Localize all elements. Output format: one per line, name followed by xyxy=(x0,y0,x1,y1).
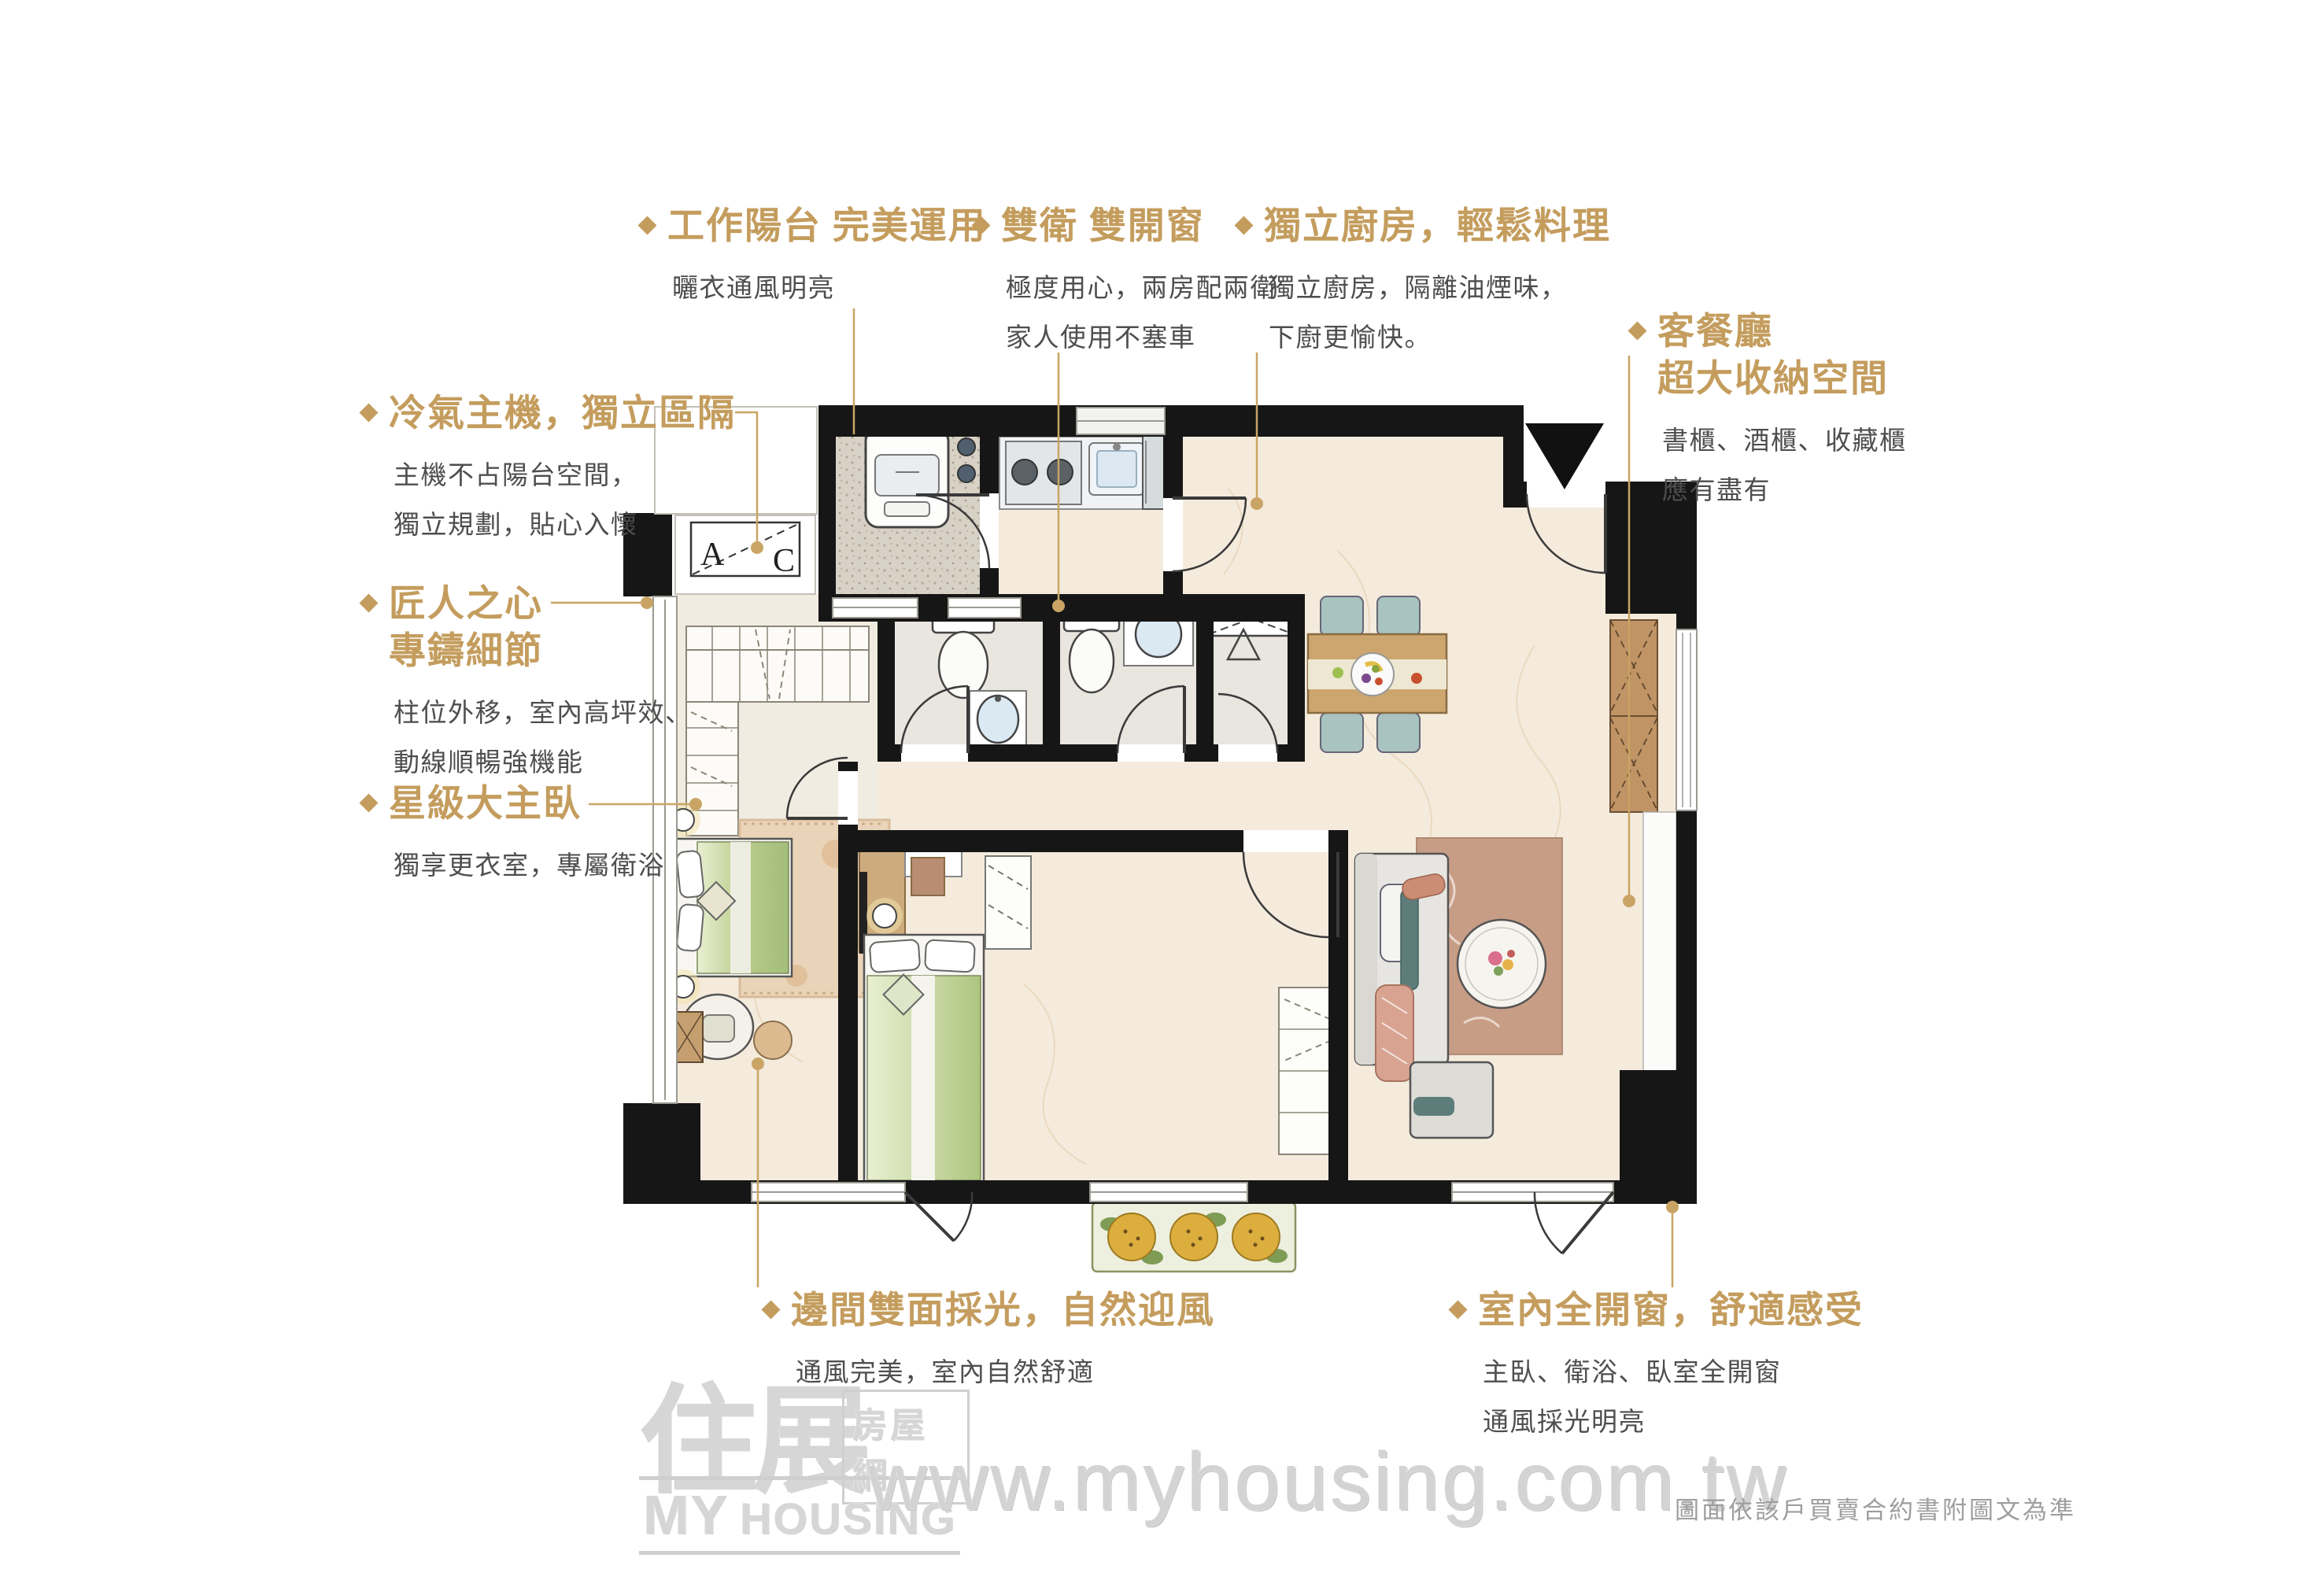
flower-planter xyxy=(1092,1202,1295,1272)
callout-body: 獨立廚房，隔離油煙味， 下廚更愉快。 xyxy=(1269,263,1611,362)
callout-body: 主機不占陽台空間， 獨立規劃，貼心入懷 xyxy=(393,450,736,549)
side-table xyxy=(754,1021,792,1059)
callout-body: 曬衣通風明亮 xyxy=(672,263,987,312)
bedroom2-shelf xyxy=(985,856,1031,949)
callout-title: 獨立廚房，輕鬆料理 xyxy=(1264,203,1611,250)
callout-master-bedroom: 星級大主臥 獨享更衣室，專屬衛浴 xyxy=(389,781,665,890)
callout-ac-unit: 冷氣主機，獨立區隔 主機不占陽台空間， 獨立規劃，貼心入懷 xyxy=(389,390,736,549)
callout-title: 星級大主臥 xyxy=(389,781,665,828)
callout-kitchen: 獨立廚房，輕鬆料理 獨立廚房，隔離油煙味， 下廚更愉快。 xyxy=(1264,203,1611,362)
callout-title: 邊間雙面採光，自然迎風 xyxy=(791,1287,1215,1335)
callout-title: 冷氣主機，獨立區隔 xyxy=(389,390,736,437)
entrance-arrow-icon xyxy=(1525,423,1604,489)
callout-body: 書櫃、酒櫃、收藏櫃 應有盡有 xyxy=(1662,415,1907,515)
callout-title: 室內全開窗，舒適感受 xyxy=(1478,1287,1864,1335)
coffee-table xyxy=(1458,920,1546,1008)
callout-body: 柱位外移，室內高坪效、 動線順暢強機能 xyxy=(393,688,693,787)
disclaimer-footnote: 圖面依該戶買賣合約書附圖文為準 xyxy=(1675,1490,2076,1526)
callout-body: 獨享更衣室，專屬衛浴 xyxy=(393,840,665,890)
fruit-plate xyxy=(1351,653,1394,696)
floorplan-page: A C xyxy=(0,0,2324,1580)
callout-full-windows: 室內全開窗，舒適感受 主臥、衛浴、臥室全開窗 通風採光明亮 xyxy=(1478,1287,1864,1446)
callout-craftsman: 匠人之心 專鑄細節 柱位外移，室內高坪效、 動線順暢強機能 xyxy=(389,581,693,787)
ac-label-c: C xyxy=(773,543,795,579)
callout-title: 工作陽台 完美運用 xyxy=(667,203,987,250)
entry-cabinet xyxy=(1610,620,1657,812)
callout-work-balcony: 工作陽台 完美運用 曬衣通風明亮 xyxy=(667,203,987,312)
callout-title: 客餐廳 超大收納空間 xyxy=(1657,308,1907,403)
media-wall xyxy=(1643,812,1676,1072)
callout-body: 主臥、衛浴、臥室全開窗 通風採光明亮 xyxy=(1483,1347,1864,1446)
callout-body: 極度用心，兩房配兩衛 家人使用不塞車 xyxy=(1006,263,1277,362)
kitchen-counter xyxy=(999,434,1177,509)
callout-title: 匠人之心 專鑄細節 xyxy=(389,581,693,675)
washing-machine-icon xyxy=(866,429,948,527)
callout-living-dining: 客餐廳 超大收納空間 書櫃、酒櫃、收藏櫃 應有盡有 xyxy=(1657,308,1907,515)
watermark-url: www.myhousing.com.tw xyxy=(867,1435,1788,1529)
